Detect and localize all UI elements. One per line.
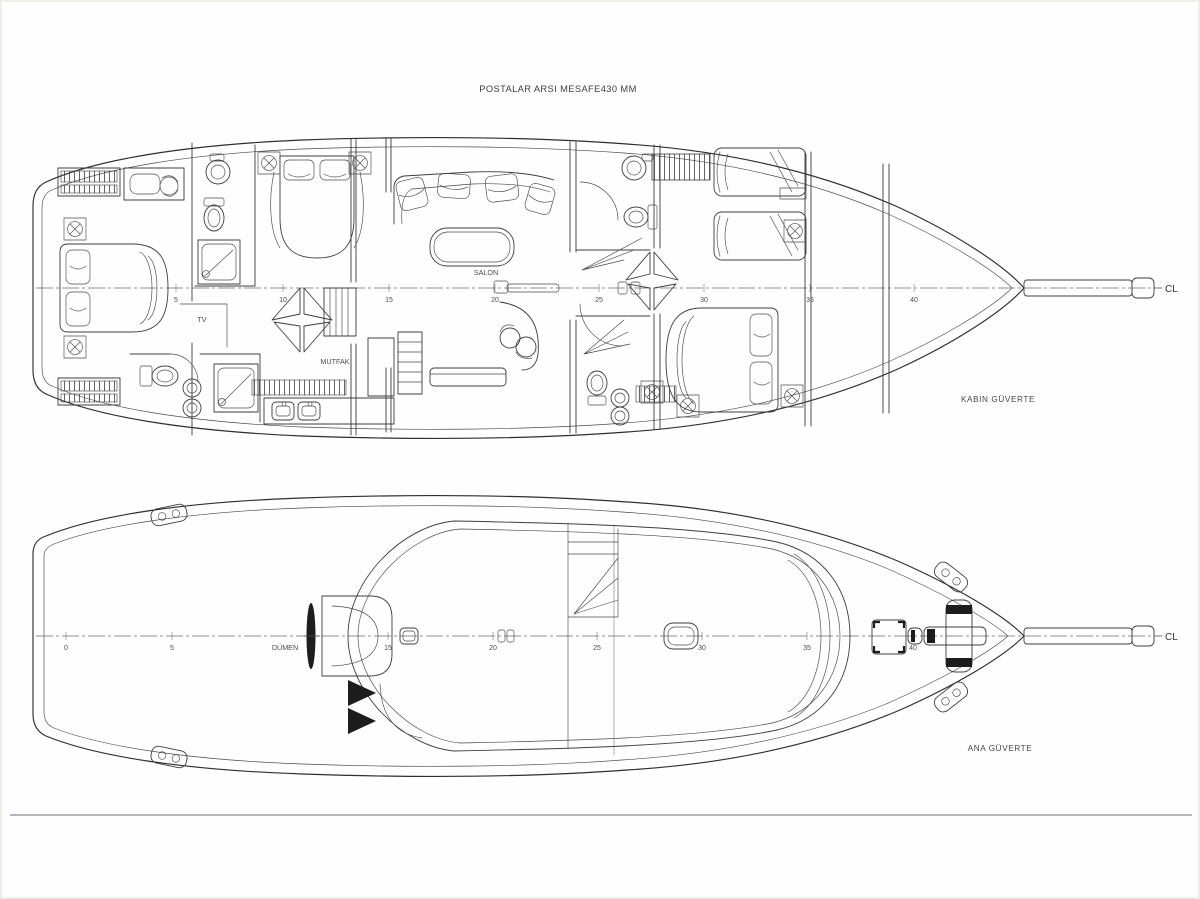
cabin-deck-label: KABIN GÜVERTE — [961, 394, 1035, 404]
master-bathroom — [130, 354, 260, 422]
station-label: 35 — [803, 645, 811, 652]
station-label: 20 — [489, 645, 497, 652]
vanity — [124, 168, 184, 200]
station-label: 30 — [698, 645, 706, 652]
companionway-step — [348, 680, 376, 706]
cleat — [932, 679, 971, 715]
main-deck-station-numbers: 0 5 15 20 25 30 35 40 — [64, 645, 917, 652]
helm-station — [304, 596, 422, 738]
galley-label: MUTFAK — [320, 357, 349, 366]
tv-label: TV — [197, 315, 206, 324]
cleat — [932, 559, 971, 595]
station-label: 20 — [491, 297, 499, 304]
twin-berth-cabin — [652, 148, 806, 260]
station-label: 15 — [385, 297, 393, 304]
salon — [394, 172, 559, 386]
station-label: 30 — [700, 297, 708, 304]
cabin-deck-plan: 5 10 15 20 25 30 35 40 — [33, 138, 1178, 439]
station-label: 5 — [174, 297, 178, 304]
salon-label: SALON — [474, 268, 498, 277]
tv-partition — [180, 304, 227, 347]
drawing-title: POSTALAR ARSI MESAFE430 MM — [479, 84, 636, 94]
station-label: 0 — [64, 645, 68, 652]
helm-label: DÜMEN — [272, 643, 298, 652]
station-label: 35 — [806, 297, 814, 304]
station-label: 40 — [910, 297, 918, 304]
companionway-step — [348, 708, 376, 734]
nav-console — [500, 302, 538, 370]
wardrobe — [652, 154, 710, 180]
salon-table — [430, 228, 514, 266]
shower — [198, 240, 240, 284]
stairs-cabin-deck — [324, 288, 422, 394]
galley — [252, 338, 394, 424]
stairs-main-deck — [568, 529, 618, 617]
centerline-cl-label: CL — [1165, 284, 1178, 295]
boat-deck-plans: POSTALAR ARSI MESAFE430 MM 5 10 15 20 25… — [2, 2, 1198, 897]
station-label: 40 — [909, 645, 917, 652]
double-door — [626, 252, 678, 310]
vip-cabin — [258, 152, 371, 258]
master-cabin — [58, 168, 227, 405]
station-label: 15 — [384, 645, 392, 652]
sideboard — [252, 380, 346, 395]
cabin-deck-station-numbers: 5 10 15 20 25 30 35 40 — [174, 297, 918, 304]
shower — [214, 364, 258, 412]
station-label: 25 — [595, 297, 603, 304]
bench — [430, 368, 506, 386]
day-head-upper — [580, 154, 657, 270]
guest-bathroom-aft — [198, 154, 240, 284]
centerline-cl-label: CL — [1165, 632, 1178, 643]
station-label: 10 — [279, 297, 287, 304]
scanned-deck-plan-page: POSTALAR ARSI MESAFE430 MM 5 10 15 20 25… — [0, 0, 1200, 899]
station-label: 5 — [170, 645, 174, 652]
main-deck-plan: 0 5 15 20 25 30 35 40 — [33, 496, 1178, 777]
station-label: 25 — [593, 645, 601, 652]
main-deck-label: ANA GÜVERTE — [968, 743, 1033, 753]
